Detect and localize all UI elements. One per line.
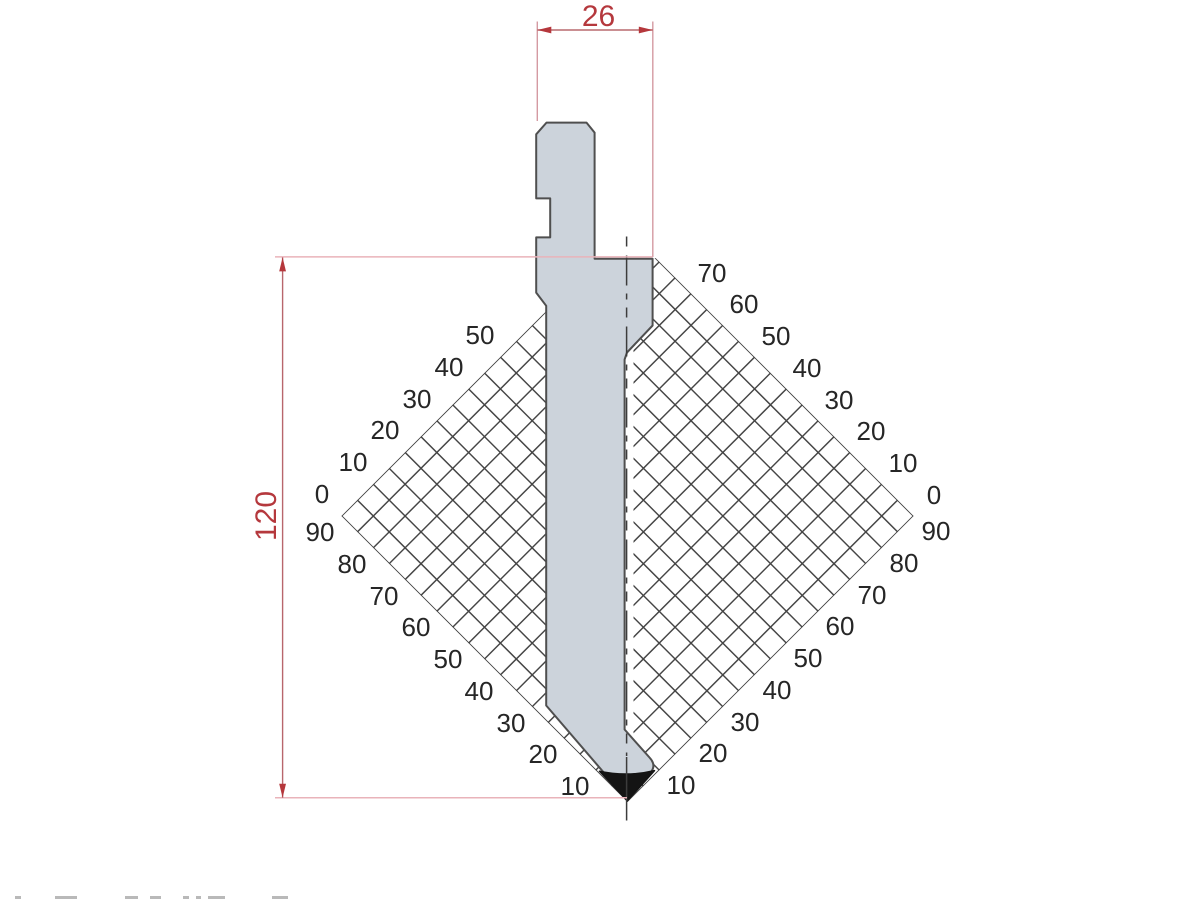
svg-text:30: 30 [731, 707, 760, 737]
svg-text:20: 20 [699, 738, 728, 768]
svg-text:70: 70 [370, 581, 399, 611]
svg-text:50: 50 [466, 320, 495, 350]
svg-text:0: 0 [927, 480, 941, 510]
svg-text:40: 40 [465, 676, 494, 706]
svg-text:90: 90 [306, 517, 335, 547]
svg-text:50: 50 [434, 644, 463, 674]
svg-text:70: 70 [698, 258, 727, 288]
svg-text:0: 0 [315, 479, 329, 509]
svg-text:20: 20 [529, 739, 558, 769]
svg-text:20: 20 [371, 415, 400, 445]
svg-text:10: 10 [889, 448, 918, 478]
svg-text:120: 120 [250, 491, 283, 541]
svg-text:30: 30 [403, 384, 432, 414]
svg-text:26: 26 [582, 0, 615, 33]
svg-text:40: 40 [763, 675, 792, 705]
svg-text:20: 20 [857, 416, 886, 446]
svg-text:10: 10 [667, 770, 696, 800]
svg-text:90: 90 [922, 516, 951, 546]
svg-text:80: 80 [890, 548, 919, 578]
svg-text:60: 60 [730, 289, 759, 319]
svg-text:40: 40 [793, 353, 822, 383]
svg-text:10: 10 [561, 771, 590, 801]
svg-text:30: 30 [497, 708, 526, 738]
svg-text:60: 60 [826, 611, 855, 641]
svg-text:80: 80 [338, 549, 367, 579]
svg-text:50: 50 [794, 643, 823, 673]
svg-text:70: 70 [858, 580, 887, 610]
svg-text:50: 50 [762, 321, 791, 351]
svg-text:30: 30 [825, 385, 854, 415]
svg-text:10: 10 [339, 447, 368, 477]
svg-text:40: 40 [435, 352, 464, 382]
svg-text:60: 60 [402, 612, 431, 642]
